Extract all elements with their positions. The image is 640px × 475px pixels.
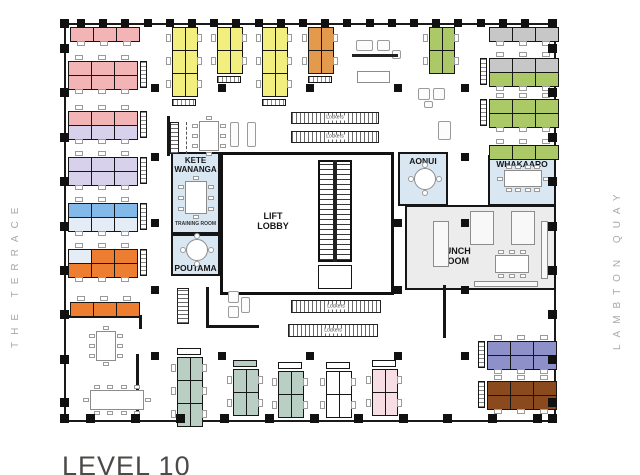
desk-cluster — [487, 341, 557, 370]
chair-dot — [422, 162, 428, 168]
desk — [488, 342, 510, 355]
chair — [75, 55, 83, 60]
desk — [490, 73, 512, 86]
desk-cluster — [233, 369, 259, 416]
floor-plan: THE TERRACE LAMBTON QUAY KETE WANANGA TR… — [0, 0, 640, 475]
chair — [303, 401, 308, 409]
locker-label: Lockers — [323, 328, 343, 333]
chair-nub — [220, 124, 226, 128]
chair-nub — [103, 326, 109, 330]
column — [533, 414, 542, 423]
chair — [454, 57, 459, 65]
chair — [242, 57, 247, 65]
chair — [540, 375, 548, 380]
chair-nub — [220, 144, 226, 148]
desk — [327, 395, 339, 417]
desk — [513, 28, 535, 41]
desk — [490, 100, 512, 113]
chair — [519, 41, 527, 46]
column — [461, 286, 469, 294]
desk — [373, 393, 385, 415]
chair — [121, 185, 129, 190]
chair — [351, 401, 356, 409]
column — [151, 153, 159, 161]
desk — [92, 204, 114, 217]
chair-nub — [145, 398, 151, 402]
desk — [534, 342, 556, 355]
column — [210, 19, 218, 27]
column — [343, 19, 351, 27]
chair — [496, 41, 504, 46]
desk — [69, 172, 91, 185]
desk — [490, 28, 512, 41]
chair — [166, 80, 171, 88]
chair — [98, 277, 106, 282]
desk — [69, 76, 91, 89]
chair-nub — [178, 185, 184, 189]
column — [461, 153, 469, 161]
column — [461, 219, 469, 227]
desk — [69, 126, 91, 139]
column — [548, 310, 557, 319]
chair — [287, 34, 292, 42]
chair-nub — [192, 134, 198, 138]
chair — [540, 369, 548, 374]
chair-nub — [206, 116, 212, 120]
chair — [256, 80, 261, 88]
chair — [121, 151, 129, 156]
column — [151, 286, 159, 294]
desk-cluster — [487, 381, 557, 410]
chair — [496, 139, 504, 144]
column — [77, 19, 85, 27]
desk — [488, 396, 510, 409]
locker-label: Lockers — [326, 304, 346, 309]
desk — [513, 114, 535, 127]
chair-nub — [208, 185, 214, 189]
column — [548, 177, 557, 186]
column — [86, 414, 95, 423]
chair — [77, 296, 85, 301]
desk — [231, 51, 243, 73]
meeting-table — [504, 170, 542, 187]
column — [218, 352, 226, 360]
chair-nub — [103, 362, 109, 366]
chair-nub — [515, 165, 521, 169]
chair — [123, 296, 131, 301]
sofa — [438, 121, 451, 140]
chair-dot — [408, 176, 414, 182]
chair-nub — [134, 385, 140, 389]
chair-nub — [520, 274, 526, 278]
column — [306, 84, 314, 92]
column — [388, 19, 396, 27]
return-cabinet — [372, 360, 396, 367]
chair-nub — [178, 207, 184, 211]
column — [548, 44, 557, 53]
chair — [494, 375, 502, 380]
return-cabinet — [172, 99, 196, 106]
column — [232, 19, 240, 27]
desk — [115, 76, 137, 89]
round-table — [186, 239, 208, 261]
desk — [92, 112, 114, 125]
chair — [333, 57, 338, 65]
column — [166, 19, 174, 27]
desk — [115, 172, 137, 185]
column — [121, 19, 129, 27]
chair-nub — [89, 334, 95, 338]
chair-nub — [525, 188, 531, 192]
chair-dot — [194, 261, 200, 267]
desk — [488, 382, 510, 395]
column — [548, 355, 557, 364]
desk — [490, 114, 512, 127]
chair — [256, 57, 261, 65]
desk-cluster — [278, 371, 304, 418]
chair — [98, 197, 106, 202]
chair-nub — [121, 385, 127, 389]
chair — [519, 127, 527, 132]
column — [394, 219, 402, 227]
chair — [303, 378, 308, 386]
return-cabinet — [326, 362, 350, 369]
chair — [454, 34, 459, 42]
chair — [123, 41, 131, 46]
chair-nub — [89, 344, 95, 348]
desk — [327, 372, 339, 394]
chair — [211, 34, 216, 42]
chair — [302, 34, 307, 42]
column — [60, 222, 69, 231]
desk — [186, 74, 198, 96]
desk-cluster — [489, 58, 559, 87]
wall — [206, 287, 209, 328]
desk — [69, 204, 91, 217]
desk — [92, 76, 114, 89]
desk-cluster — [172, 27, 198, 97]
wall — [206, 325, 259, 328]
locker-row — [177, 288, 189, 324]
desk — [247, 370, 259, 392]
desk — [536, 114, 558, 127]
chair — [517, 335, 525, 340]
chair — [351, 378, 356, 386]
meeting-table — [96, 331, 116, 361]
chair-nub — [117, 344, 123, 348]
meeting-table — [199, 121, 219, 151]
column — [60, 398, 69, 407]
desk — [536, 28, 558, 41]
chair — [98, 55, 106, 60]
desk — [488, 356, 510, 369]
chair — [121, 89, 129, 94]
chair-nub — [220, 134, 226, 138]
column — [477, 19, 485, 27]
chair — [366, 399, 371, 407]
chair — [272, 401, 277, 409]
return-cabinet — [480, 99, 487, 126]
desk — [218, 28, 230, 50]
chair-nub — [206, 152, 212, 156]
desk — [279, 395, 291, 417]
sofa — [228, 306, 239, 318]
desk — [92, 62, 114, 75]
desk-cluster — [68, 249, 138, 278]
desk — [186, 51, 198, 73]
desk-cluster — [308, 27, 334, 74]
column — [60, 88, 69, 97]
chair — [256, 34, 261, 42]
sofa — [424, 101, 433, 108]
chair — [121, 277, 129, 282]
desk — [536, 73, 558, 86]
desk — [513, 146, 535, 159]
return-cabinet — [478, 381, 485, 408]
desk — [115, 204, 137, 217]
chair — [202, 364, 207, 372]
desk — [115, 158, 137, 171]
chair — [171, 387, 176, 395]
chair — [423, 57, 428, 65]
chair — [258, 376, 263, 384]
lunch-furniture — [433, 221, 449, 267]
sofa — [241, 297, 250, 313]
chair-nub — [498, 274, 504, 278]
stair-divider — [333, 160, 337, 262]
column — [277, 19, 285, 27]
chair — [320, 378, 325, 386]
column — [394, 352, 402, 360]
chair-nub — [117, 354, 123, 358]
desk — [322, 51, 334, 73]
room-label-whakaaro: WHAKAARO — [490, 160, 554, 169]
chair — [98, 231, 106, 236]
chair — [75, 197, 83, 202]
building-core: LIFT LOBBY — [220, 152, 394, 295]
desk — [511, 342, 533, 355]
column — [354, 414, 363, 423]
column — [394, 286, 402, 294]
return-cabinet — [308, 76, 332, 83]
desk — [234, 393, 246, 415]
column — [410, 19, 418, 27]
column — [99, 19, 107, 27]
chair — [197, 57, 202, 65]
desk — [173, 51, 185, 73]
chair-nub — [107, 411, 113, 415]
column — [151, 352, 159, 360]
column — [60, 310, 69, 319]
chair-nub — [509, 250, 515, 254]
column — [548, 88, 557, 97]
sliding-door-dashed-line — [186, 122, 187, 154]
chair — [98, 151, 106, 156]
desk — [430, 51, 442, 73]
desk — [115, 264, 137, 277]
desk — [69, 158, 91, 171]
column — [321, 19, 329, 27]
chair — [287, 80, 292, 88]
chair — [320, 401, 325, 409]
column — [461, 84, 469, 92]
return-cabinet — [140, 61, 147, 88]
chair — [75, 277, 83, 282]
chair-nub — [178, 196, 184, 200]
desk — [513, 100, 535, 113]
column — [548, 222, 557, 231]
lunch-furniture — [541, 221, 548, 279]
chair — [227, 399, 232, 407]
return-cabinet — [478, 341, 485, 368]
column — [488, 414, 497, 423]
desk — [92, 158, 114, 171]
desk — [115, 112, 137, 125]
return-cabinet — [262, 99, 286, 106]
chair — [496, 86, 504, 91]
desk-cluster — [68, 111, 138, 140]
desk — [490, 146, 512, 159]
desk — [115, 218, 137, 231]
desk — [92, 264, 114, 277]
chair — [519, 86, 527, 91]
desk — [94, 28, 116, 41]
desk — [373, 370, 385, 392]
return-cabinet — [233, 360, 257, 367]
column — [432, 19, 440, 27]
column — [144, 19, 152, 27]
desk-cluster — [68, 157, 138, 186]
chair-nub — [506, 165, 512, 169]
desk — [513, 73, 535, 86]
desk — [511, 396, 533, 409]
chair — [98, 185, 106, 190]
chair-nub — [192, 144, 198, 148]
desk — [309, 28, 321, 50]
desk — [536, 59, 558, 72]
desk — [115, 250, 137, 263]
return-cabinet — [140, 249, 147, 276]
lunch-furniture — [474, 281, 538, 287]
sofa — [433, 88, 445, 100]
chair — [98, 105, 106, 110]
desk — [263, 28, 275, 50]
chair-nub — [107, 385, 113, 389]
chair — [517, 375, 525, 380]
chair — [242, 34, 247, 42]
locker-row: Lockers — [291, 131, 379, 143]
column — [218, 84, 226, 92]
meeting-table — [185, 181, 207, 214]
lunch-furniture — [470, 211, 494, 245]
chair — [517, 409, 525, 414]
desk — [263, 51, 275, 73]
locker-label: Lockers — [325, 135, 345, 140]
chair-nub — [121, 411, 127, 415]
chair — [519, 139, 527, 144]
chair — [540, 335, 548, 340]
desk — [443, 28, 455, 50]
desk-cluster — [489, 99, 559, 128]
desk-cluster — [372, 369, 398, 416]
column — [499, 19, 507, 27]
chair — [494, 369, 502, 374]
return-cabinet — [177, 348, 201, 355]
desk — [292, 372, 304, 394]
column — [131, 414, 140, 423]
chair — [121, 105, 129, 110]
desk — [247, 393, 259, 415]
desk — [234, 370, 246, 392]
desk — [71, 28, 93, 41]
column — [151, 219, 159, 227]
desk — [534, 382, 556, 395]
chair — [519, 93, 527, 98]
chair — [397, 399, 402, 407]
chair — [75, 231, 83, 236]
column — [60, 19, 69, 28]
chair — [121, 243, 129, 248]
desk — [292, 395, 304, 417]
chair-nub — [117, 334, 123, 338]
chair — [272, 378, 277, 386]
chair — [517, 369, 525, 374]
desk — [386, 393, 398, 415]
desk — [443, 51, 455, 73]
locker-row — [170, 122, 179, 154]
desk — [71, 303, 93, 316]
column — [443, 414, 452, 423]
desk — [178, 381, 190, 403]
chair — [77, 41, 85, 46]
desk — [69, 250, 91, 263]
chair — [519, 52, 527, 57]
desk — [69, 218, 91, 231]
desk-cluster — [68, 203, 138, 232]
column — [548, 398, 557, 407]
chair-dot — [208, 247, 214, 253]
chair-nub — [498, 250, 504, 254]
column — [60, 177, 69, 186]
column — [548, 19, 557, 28]
return-cabinet — [278, 362, 302, 369]
chair — [366, 376, 371, 384]
desk — [276, 74, 288, 96]
column — [454, 19, 462, 27]
chair — [121, 231, 129, 236]
locker-row: Lockers — [291, 300, 381, 313]
desk — [218, 51, 230, 73]
chair-nub — [208, 196, 214, 200]
chair — [197, 80, 202, 88]
chair — [98, 243, 106, 248]
desk — [263, 74, 275, 96]
chair — [423, 34, 428, 42]
reception-bench — [352, 54, 398, 57]
sofa — [228, 291, 239, 303]
desk — [186, 28, 198, 50]
chair — [75, 139, 83, 144]
locker-row: Lockers — [288, 324, 378, 337]
desk — [276, 28, 288, 50]
side-table — [357, 71, 390, 83]
column — [60, 414, 69, 423]
column — [394, 84, 402, 92]
room-label-training-room: TRAINING ROOM — [173, 222, 218, 228]
chair — [75, 243, 83, 248]
desk — [92, 172, 114, 185]
column — [548, 414, 557, 423]
